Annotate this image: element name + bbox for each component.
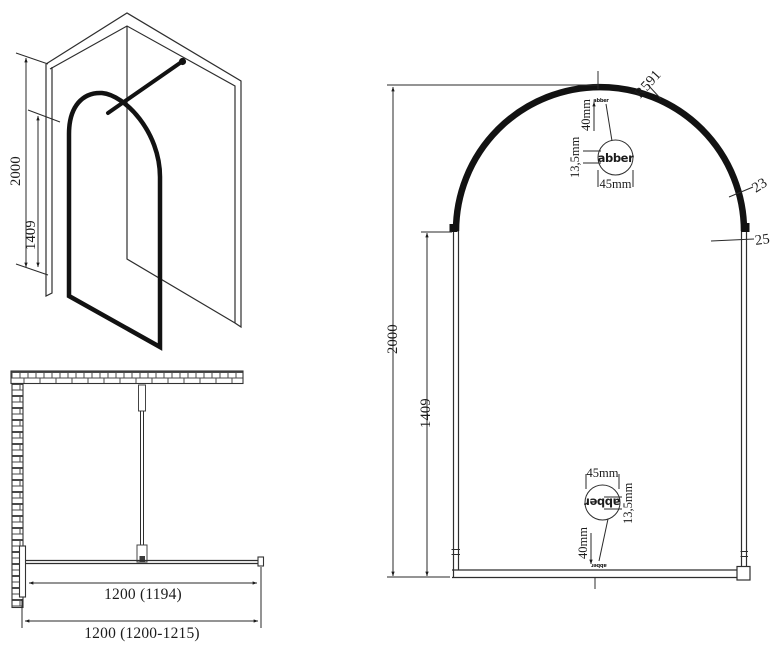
- bar-wall-bracket: [139, 385, 146, 411]
- side-profile-leader: [711, 239, 754, 241]
- glass-end-cap-plan: [258, 557, 264, 566]
- detail-leader: [599, 519, 608, 561]
- bottom-logo-detail: abber abber 40mm 13,5mm 45mm: [576, 466, 635, 568]
- logo-width-label: 45mm: [587, 466, 619, 480]
- bottom-bar-end-block: [737, 567, 750, 581]
- logo-text-rotated: abber: [584, 496, 620, 510]
- plan-view: 1200 (1194) 1200 (1200-1215): [11, 371, 264, 642]
- glass-panel-outline-3d: [46, 13, 241, 327]
- side-profile-label: 25: [754, 231, 771, 249]
- back-wall-hatch: [11, 371, 243, 384]
- offset-label: 40mm: [579, 99, 593, 131]
- drawing-canvas: 2000 1409 1200 (1194) 1200 (1200-1215): [0, 0, 772, 647]
- left-spring-connector: [450, 224, 458, 232]
- logo-text: abber: [598, 151, 634, 165]
- logo-width-label: 45mm: [600, 177, 632, 191]
- side-frame-profiles: [454, 231, 747, 577]
- logo-height-label: 13,5mm: [568, 136, 582, 178]
- logo-mark-on-glass-bottom: abber: [591, 562, 607, 568]
- bottom-bar: [452, 570, 737, 578]
- dim-label-2000: 2000: [8, 156, 24, 186]
- frame-legs-and-bottom-3d: [69, 134, 160, 347]
- dim-label-glass-width: 1200 (1194): [104, 586, 182, 603]
- logo-height-label: 13,5mm: [621, 482, 635, 524]
- wall-profile-plan: [20, 546, 26, 597]
- extension-lines: [387, 85, 598, 577]
- offset-label: 40mm: [576, 527, 590, 559]
- dim-label-1409: 1409: [418, 398, 434, 428]
- bar-shaft: [141, 411, 144, 545]
- right-spring-connector: [741, 223, 750, 232]
- dim-label-2000: 2000: [385, 324, 401, 354]
- support-bar-plan: [137, 385, 147, 563]
- arched-frame-3d: [69, 93, 160, 177]
- front-view: 2000 1409 R591 23 25 abber abber 40mm 13…: [385, 67, 771, 589]
- bar-clamp-block: [140, 556, 146, 563]
- technical-drawing-shower-screen: 2000 1409 1200 (1194) 1200 (1200-1215): [0, 0, 772, 647]
- perspective-view: 2000 1409: [8, 13, 241, 347]
- detail-leader: [606, 104, 612, 141]
- arch-profile-label: 23: [749, 175, 770, 197]
- top-logo-detail: abber abber 40mm 13,5mm 45mm: [568, 98, 634, 191]
- logo-mark-on-glass-top: abber: [593, 98, 609, 104]
- dim-label-total-width: 1200 (1200-1215): [84, 625, 200, 642]
- support-bar-3d: [108, 63, 180, 113]
- support-bar-wall-mount: [179, 58, 186, 65]
- dim-label-1409: 1409: [23, 220, 39, 250]
- plan-dimensions: 1200 (1194) 1200 (1200-1215): [22, 567, 261, 642]
